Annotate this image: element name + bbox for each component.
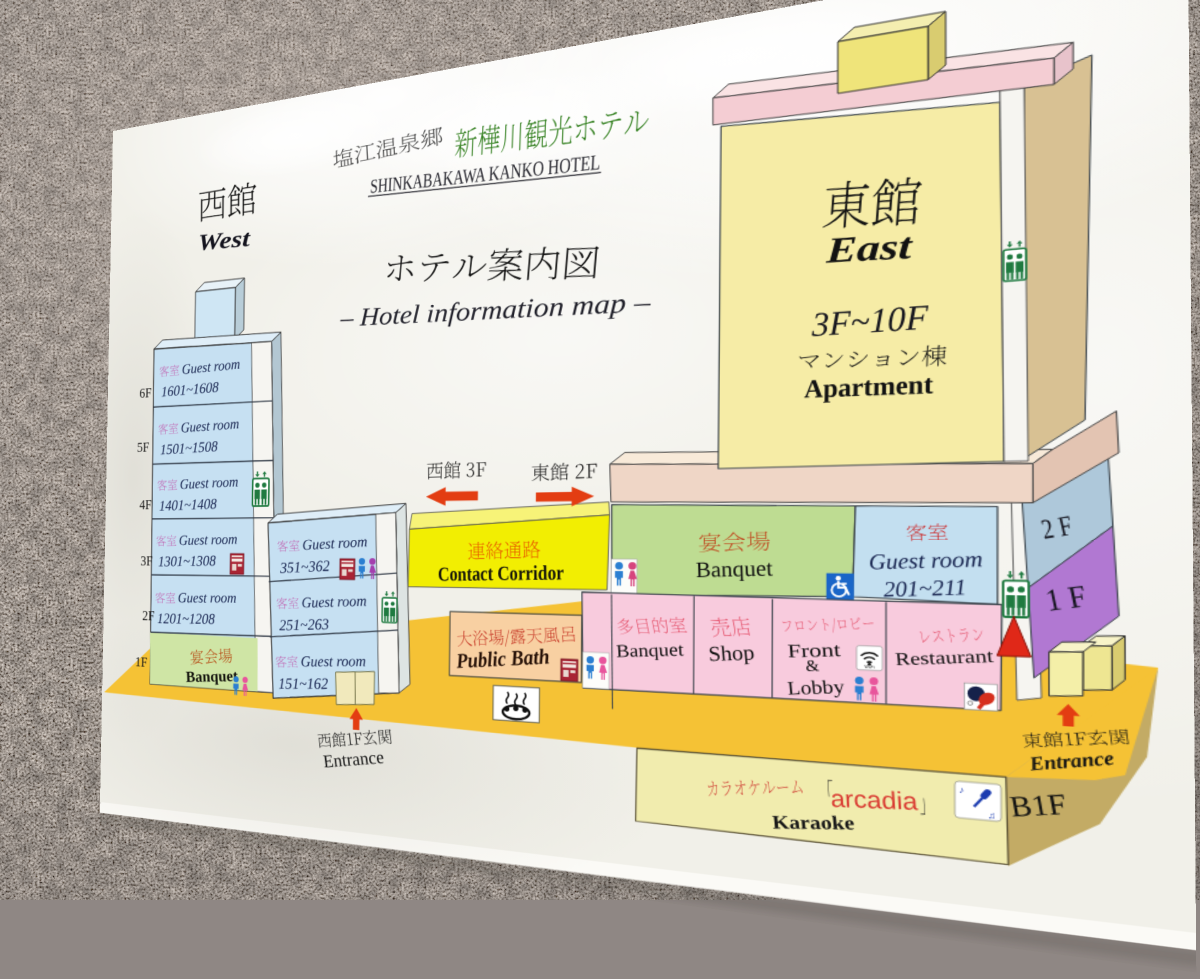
svg-text:251~263: 251~263 <box>279 616 329 634</box>
svg-text:Guest room: Guest room <box>179 531 238 549</box>
svg-text:Lobby: Lobby <box>786 676 846 699</box>
svg-text:Entrance: Entrance <box>322 748 385 773</box>
svg-text:Public Bath: Public Bath <box>454 646 550 673</box>
svg-text:♪: ♪ <box>959 786 964 796</box>
svg-text:Apartment: Apartment <box>804 369 934 404</box>
svg-text:1301~1308: 1301~1308 <box>158 553 216 570</box>
svg-text:Shop: Shop <box>708 642 756 667</box>
svg-text:Karaoke: Karaoke <box>771 812 856 834</box>
svg-text:3F~10F: 3F~10F <box>810 298 929 345</box>
svg-text:Guest room: Guest room <box>300 652 366 670</box>
svg-text:2F: 2F <box>142 608 155 624</box>
svg-text:Guest room: Guest room <box>180 473 239 492</box>
svg-text:151~162: 151~162 <box>278 675 329 692</box>
svg-text:351~362: 351~362 <box>279 557 331 576</box>
svg-text:Banquet: Banquet <box>695 557 774 583</box>
svg-text:1 F: 1 F <box>1043 580 1090 618</box>
svg-text:West: West <box>197 226 252 257</box>
svg-text:Wi-Fi: Wi-Fi <box>865 665 875 670</box>
svg-text:Restaurant: Restaurant <box>894 646 996 670</box>
svg-text:4F: 4F <box>139 497 152 513</box>
svg-text:1201~1208: 1201~1208 <box>157 611 215 628</box>
svg-text:B1F: B1F <box>1007 788 1069 823</box>
svg-text:Contact Corridor: Contact Corridor <box>438 562 564 586</box>
svg-text:Guest room: Guest room <box>302 533 368 554</box>
svg-text:Banquet: Banquet <box>185 667 238 686</box>
svg-text:201~211: 201~211 <box>883 576 967 603</box>
svg-text:6F: 6F <box>139 385 152 402</box>
svg-text:Guest room: Guest room <box>178 590 237 607</box>
svg-text:5F: 5F <box>137 439 150 455</box>
svg-text:Banquet: Banquet <box>615 639 684 662</box>
svg-text:1401~1408: 1401~1408 <box>159 496 217 514</box>
svg-text:♫: ♫ <box>988 812 996 822</box>
svg-text:3F: 3F <box>140 553 153 569</box>
svg-text:1F: 1F <box>135 654 148 671</box>
svg-text:Guest room: Guest room <box>868 548 983 576</box>
svg-text:&: & <box>805 657 821 675</box>
svg-text:East: East <box>824 226 915 271</box>
svg-text:Guest room: Guest room <box>301 592 367 611</box>
